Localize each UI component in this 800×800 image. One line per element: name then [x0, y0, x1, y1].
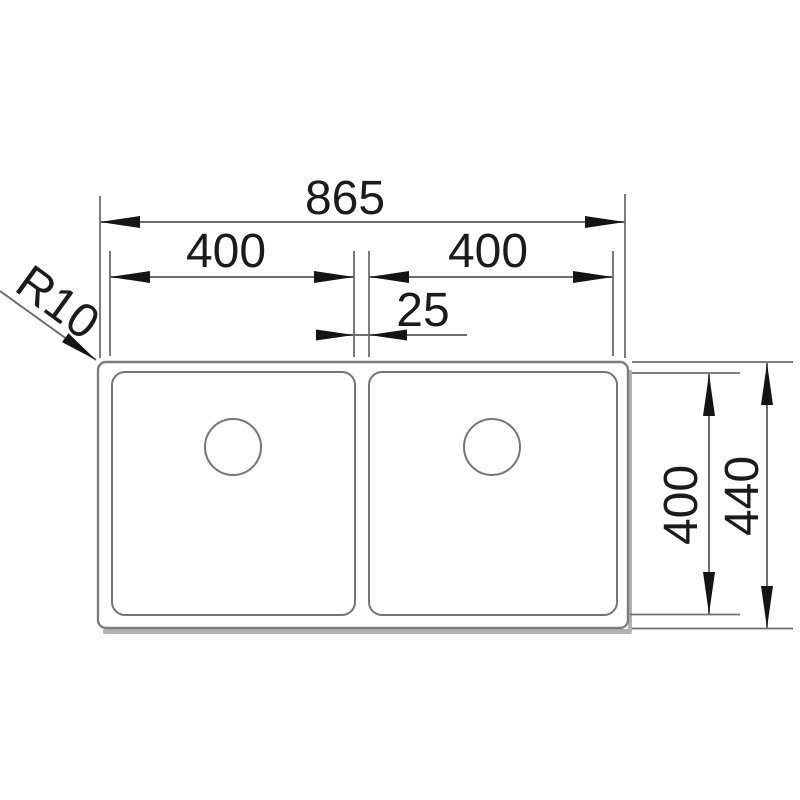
right-drain-hole: [464, 419, 520, 475]
arrowhead-bottom: [761, 586, 773, 628]
dim-divider-width-label: 25: [396, 284, 449, 337]
bottom-shadow: [103, 629, 632, 634]
arrowhead-left: [100, 216, 140, 228]
dim-left-bowl-width-label: 400: [186, 225, 266, 278]
arrowhead-left: [110, 271, 150, 283]
dim-overall-width-label: 865: [305, 172, 385, 225]
arrowhead-top: [703, 374, 715, 416]
left-drain-hole: [205, 419, 261, 475]
sink-outer-edge: [98, 362, 628, 628]
dim-bowl-depth-label: 400: [655, 465, 708, 545]
dim-overall-depth-label: 440: [716, 456, 769, 536]
sink-body: [98, 362, 632, 634]
corner-radius-label: R10: [6, 256, 108, 351]
dim-divider-width: 25: [316, 284, 467, 341]
arrowhead-right: [314, 271, 354, 283]
arrowhead-top: [761, 363, 773, 405]
arrowhead-right: [585, 216, 625, 228]
arrowhead-left: [369, 271, 409, 283]
sink-technical-drawing-page: 865 400 400 25: [0, 0, 800, 800]
arrowhead-left: [316, 330, 354, 341]
arrowhead-bottom: [703, 572, 715, 614]
right-bowl: [369, 372, 617, 615]
sink-technical-drawing: 865 400 400 25: [0, 0, 800, 800]
left-bowl: [112, 372, 355, 615]
radius-callout: R10: [0, 256, 109, 365]
dim-right-bowl-width-label: 400: [448, 225, 528, 278]
dim-overall-width: 865: [100, 172, 625, 358]
arrowhead-right: [573, 271, 613, 283]
